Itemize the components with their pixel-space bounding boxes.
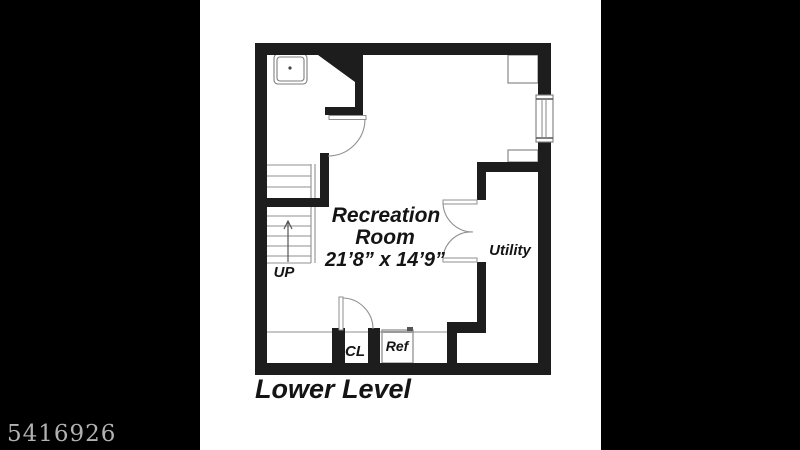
double-door-arc-bottom	[443, 232, 473, 260]
stair-separator-wall	[255, 198, 329, 207]
recreation-room-label-line2: Room	[355, 226, 415, 249]
floor-title: Lower Level	[255, 374, 412, 404]
refrigerator-handle	[407, 327, 413, 331]
stairs-lower-flight	[267, 207, 315, 263]
utility-label: Utility	[489, 242, 531, 259]
stairs-upper-flight	[267, 164, 315, 198]
shelf-mid-right	[508, 150, 538, 162]
diagonal-corner-wall	[318, 55, 363, 82]
sink-drain	[288, 66, 291, 69]
door-swing-arc	[328, 119, 365, 156]
recreation-room-label-line1: Recreation	[332, 204, 441, 227]
double-door-leaf-bottom	[443, 258, 477, 262]
up-label: UP	[274, 264, 296, 281]
double-door-arc-top	[443, 202, 473, 232]
listing-number: 5416926	[7, 421, 116, 447]
interior-walls-left	[255, 55, 363, 207]
screenshot-root: Recreation Room 21’8” x 14’9” Utility UP…	[0, 0, 800, 450]
recreation-room-dimensions: 21’8” x 14’9”	[324, 249, 445, 271]
window	[536, 95, 553, 142]
utility-walls	[447, 162, 538, 375]
floor-plan-photo: Recreation Room 21’8” x 14’9” Utility UP…	[200, 0, 601, 450]
double-door-leaf-top	[443, 200, 477, 204]
closet-door-leaf	[339, 297, 343, 330]
refrigerator-label: Ref	[386, 338, 410, 354]
door-leaf	[329, 116, 366, 120]
utility-double-door	[443, 200, 477, 262]
floor-plan-drawing: Recreation Room 21’8” x 14’9” Utility UP…	[200, 0, 601, 450]
closet-label: CL	[345, 343, 365, 360]
laundry-door	[328, 116, 366, 157]
shelf-top-right	[508, 55, 538, 83]
door-jamb-stub	[320, 153, 329, 199]
sink-fixture	[274, 50, 307, 84]
closet-door-arc	[342, 298, 373, 329]
